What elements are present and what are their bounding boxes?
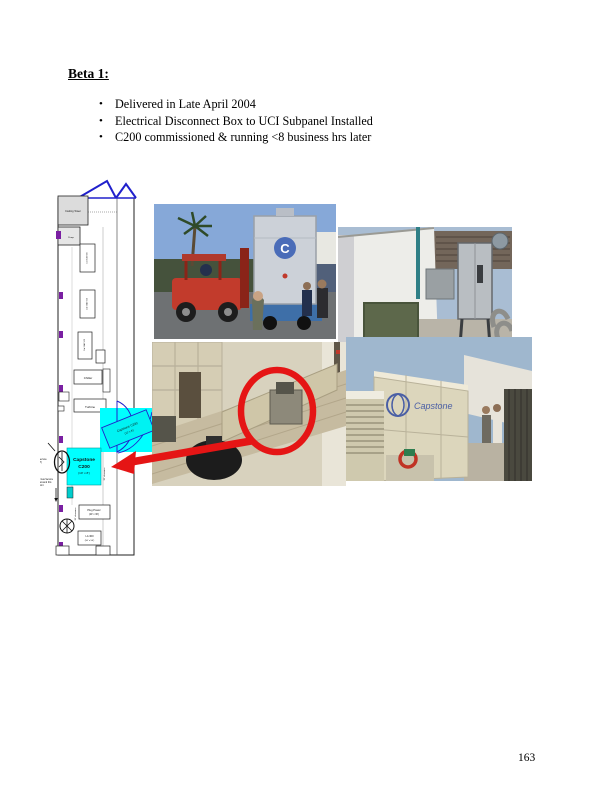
la300-size: (50' x 50') [85,540,95,542]
roof-triangles-icon [78,181,136,198]
doorway [179,372,201,418]
dark-equipment [152,416,176,442]
dark-fence [504,389,532,481]
fixture-box [96,546,110,555]
turbine-label: Turbine [85,405,95,409]
crate-cap [276,208,294,216]
photo-capstone-unit: Capstone [346,337,532,481]
person [252,296,264,330]
cooling-tower-label: Cooling Tower [65,210,81,213]
la300-label: LA 300 [85,534,94,538]
page-title: Beta 1: [68,66,109,82]
meter-icon [492,233,508,249]
vac-service-label: 480 VAC Service [40,458,47,461]
plug-power-label: Plug Power [87,508,100,512]
bullet-list: • Delivered in Late April 2004 • Electri… [99,96,479,146]
chiller-label: Chiller [84,376,93,380]
purple-marker-icon [56,231,61,239]
dome-cap [206,436,222,446]
person [317,288,328,318]
capstone-c200-model: C200 [78,464,90,470]
clearance-label: 30' clearance [74,507,77,521]
bullet-text: Electrical Disconnect Box to UCI Subpane… [115,113,373,130]
trailer-wheel [263,316,277,330]
list-item: • C200 commissioned & running <8 busines… [99,129,479,146]
vac-service-label2: (4w/4P) [40,462,42,464]
person-head [493,404,501,412]
green-fitting [404,449,415,456]
driver [200,264,212,276]
capstone-c200-size: (10' x 8') [78,471,90,475]
edge-detail [336,350,340,354]
equipment-label: Cat 5 AD 500 [83,338,86,351]
circled-equipment [270,390,302,424]
bullet-icon: • [99,129,115,146]
la300-box [78,531,101,545]
forklift-roof [182,254,226,261]
fixture-box [58,406,64,411]
pump-label: Pump [68,237,74,239]
equipment-top [276,382,294,394]
teal-pole [416,227,420,299]
person [302,290,312,316]
teal-marker [67,487,73,498]
duct-box [103,369,110,392]
site-floor-plan-diagram: Cooling Tower Pump Cat 5 AJ 500 Cat 5 AD… [40,172,160,562]
panel-handle [477,265,483,283]
leader-line [48,443,55,451]
plug-power-size: (20' x 30') [89,514,99,516]
person [493,413,502,443]
photo-disconnect-box [338,227,512,346]
clearance-label: 30' clearance [103,467,106,481]
page-number: 163 [518,752,535,764]
pump-box [58,227,80,245]
list-item: • Delivered in Late April 2004 [99,96,479,113]
fixture-box [56,546,69,555]
bullet-text: C200 commissioned & running <8 business … [115,129,371,146]
crate-red-dot [283,274,288,279]
down-arrow-head [54,498,57,502]
capstone-logo-text: Capstone [414,401,453,411]
fixture-box [59,392,69,401]
bullet-text: Delivered in Late April 2004 [115,96,256,113]
photo-rooftop-equipment [152,342,346,486]
gas-service-label: No Natural Gas Service [40,478,54,481]
photo-crate-delivery: C [154,204,336,339]
hub [182,308,190,316]
gas-service-label2: plumbed around this [40,481,52,484]
equipment-label: Cat 5 AD 500 [86,297,89,310]
wall-shadow [338,235,354,346]
equipment-box [96,350,105,363]
hub [224,308,232,316]
bullet-icon: • [99,96,115,113]
gas-service-label3: point [40,484,44,487]
capstone-c200-name: Capstone [73,457,95,463]
person [482,415,491,443]
person-head [253,291,263,301]
person-head [482,406,490,414]
bullet-icon: • [99,113,115,130]
plug-power-box [79,505,110,519]
small-unit [426,269,454,299]
forklift-mast [240,248,249,308]
person-head [303,282,311,290]
document-page: Beta 1: • Delivered in Late April 2004 •… [0,0,612,792]
equipment-label: Cat 5 AJ 500 [86,251,89,263]
person-head [318,280,327,289]
trailer-wheel [297,316,311,330]
crate-logo-letter: C [280,241,290,256]
list-item: • Electrical Disconnect Box to UCI Subpa… [99,113,479,130]
